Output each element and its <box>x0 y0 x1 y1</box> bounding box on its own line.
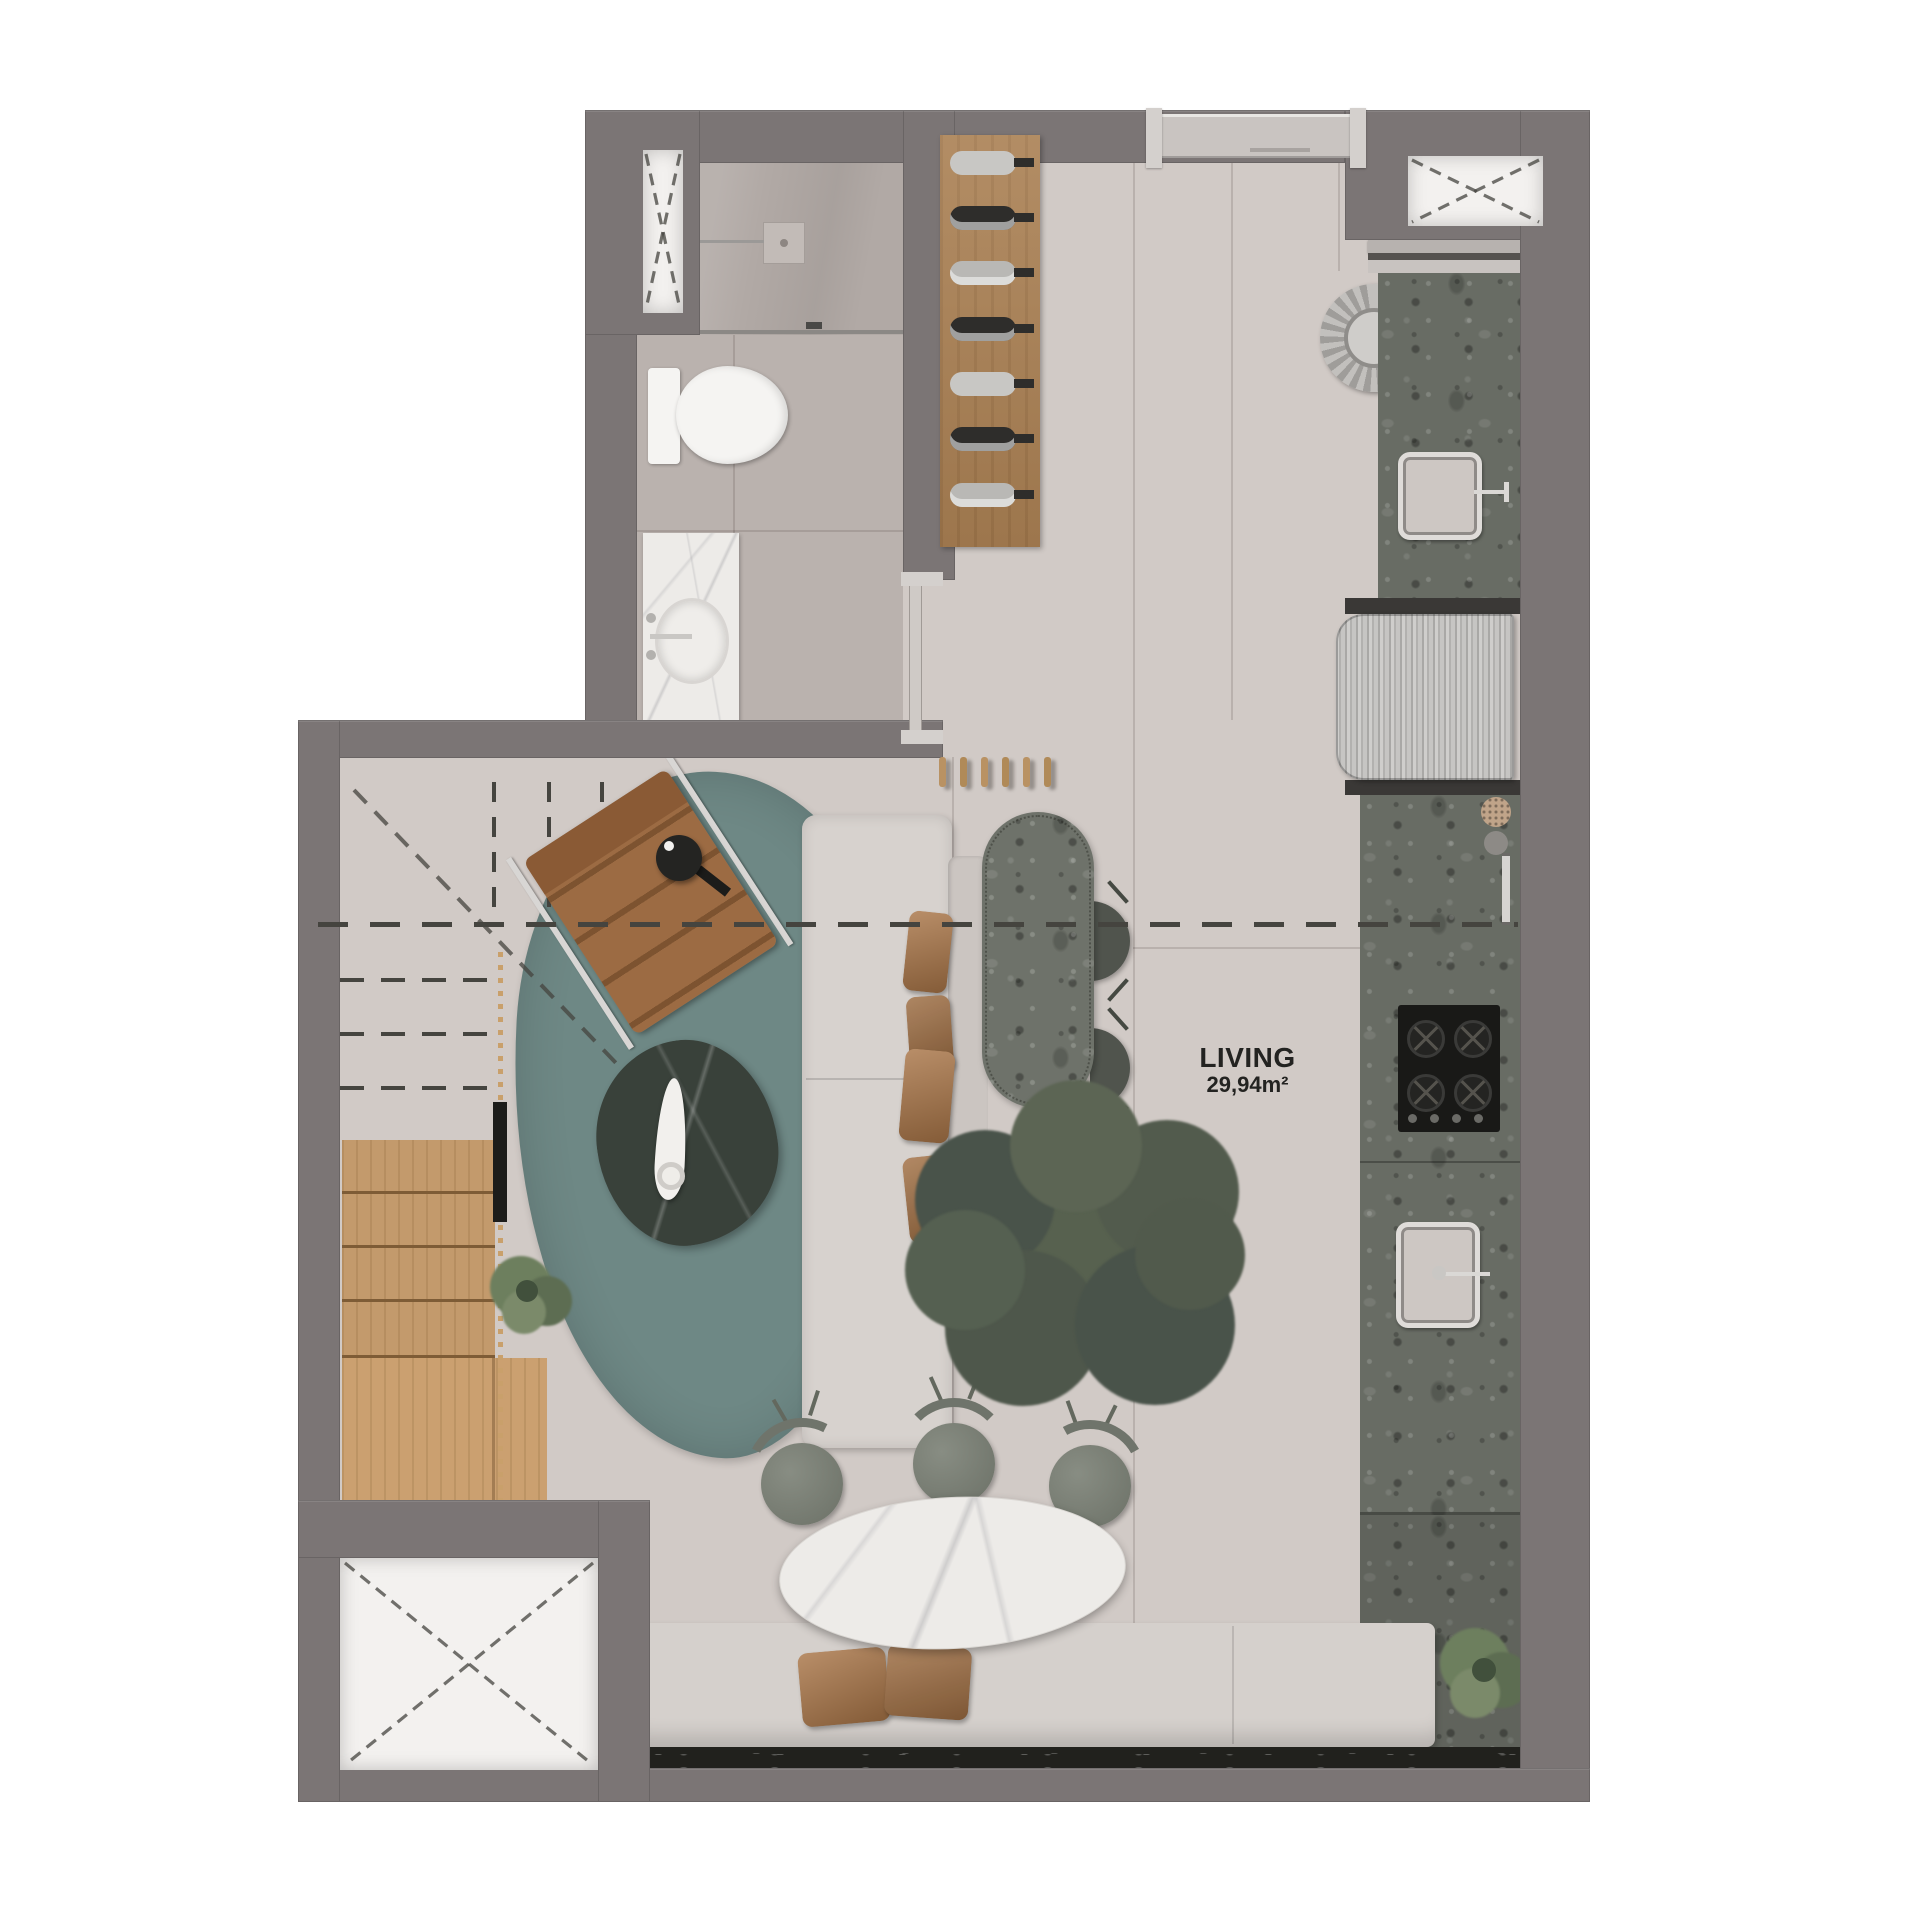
glass-door-handle <box>806 322 822 329</box>
stair-railing-bar <box>493 1102 507 1222</box>
wine-bottle <box>950 151 1016 175</box>
void-dash-row <box>340 978 498 982</box>
shower-drain-dot <box>780 239 788 247</box>
wine-bottle-neck <box>1014 268 1034 277</box>
cooktop-knob <box>1430 1114 1439 1123</box>
wall-left-wing <box>298 720 340 1802</box>
coat-peg <box>1002 757 1009 787</box>
faucet-bottom-knob <box>1432 1266 1446 1280</box>
bench-seat <box>640 1623 1435 1747</box>
kitchen-counter-bottom <box>1360 795 1520 1515</box>
vanity-faucet-knob <box>646 613 656 623</box>
tree-foliage <box>1010 1080 1142 1212</box>
floor-grout-line <box>1231 163 1233 720</box>
vanity-basin <box>655 598 729 684</box>
wine-bottle-neck <box>1014 158 1034 167</box>
side-table <box>656 835 702 881</box>
stair-landing-seam <box>492 1358 495 1503</box>
bathroom-door-leaf <box>909 585 922 735</box>
counter-joint <box>1360 1512 1520 1515</box>
plant-center <box>1472 1658 1496 1682</box>
coffee-table-cup <box>657 1162 685 1190</box>
floor-grout-line <box>1338 163 1340 271</box>
vanity-faucet-spout <box>650 634 692 639</box>
void-dash-vertical <box>492 782 496 922</box>
entry-door-jamb <box>1350 108 1366 168</box>
bench-seam <box>1232 1626 1234 1744</box>
refrigerator <box>1336 614 1514 780</box>
wine-rack <box>940 135 1040 547</box>
coat-peg <box>1044 757 1051 787</box>
floor-grout-line <box>1133 947 1360 949</box>
room-label-name: LIVING <box>1135 1042 1360 1073</box>
entry-door-jamb <box>1146 108 1162 168</box>
cabinet-handle <box>1502 856 1510 922</box>
dining-chair <box>761 1443 843 1525</box>
room-label: LIVING 29,94m² <box>1135 1042 1360 1098</box>
indoor-tree <box>905 1080 1245 1410</box>
stair-tread <box>342 1248 495 1302</box>
kitchen-island <box>982 812 1094 1108</box>
tree-foliage <box>1135 1200 1245 1310</box>
projection-dash-line <box>318 922 1518 927</box>
wall-right <box>1520 110 1590 1802</box>
stair-tread <box>342 1140 495 1194</box>
wine-bottle <box>950 372 1016 396</box>
wine-bottle <box>950 483 1016 507</box>
shower-arm <box>700 240 764 243</box>
fridge-gap <box>1345 598 1520 614</box>
faucet-top <box>1474 490 1508 494</box>
spice-jar <box>1484 831 1508 855</box>
stair-tread <box>342 1302 495 1358</box>
vanity-faucet-knob <box>646 650 656 660</box>
coat-peg <box>960 757 967 787</box>
wine-bottle-neck <box>1014 379 1034 388</box>
wine-bottle-neck <box>1014 434 1034 443</box>
coat-peg <box>939 757 946 787</box>
cooktop-knob <box>1474 1114 1483 1123</box>
kitchen-counter-top <box>1378 272 1520 612</box>
bench-pillow <box>884 1643 973 1721</box>
void-dash-row <box>340 1032 498 1036</box>
stair-tread <box>342 1194 495 1248</box>
bath-grout-line <box>637 530 903 532</box>
shower-niche-x <box>643 150 683 313</box>
tree-foliage <box>905 1210 1025 1330</box>
stair-landing <box>342 1358 547 1503</box>
wall-south-band <box>298 720 943 758</box>
wine-bottle <box>950 261 1016 285</box>
kitchen-sink-top <box>1398 452 1482 540</box>
wine-bottle <box>950 206 1016 230</box>
coat-peg <box>981 757 988 787</box>
wine-bottle-neck <box>1014 213 1034 222</box>
dining-chair <box>913 1423 995 1505</box>
bathroom-door-jamb <box>901 572 943 586</box>
wine-bottle <box>950 427 1016 451</box>
room-label-area: 29,94m² <box>1135 1073 1360 1098</box>
wall-box-right <box>598 1500 650 1802</box>
floor-plan: LIVING 29,94m² <box>0 0 1920 1920</box>
plant-stairs <box>482 1246 577 1341</box>
wall-bottom <box>298 1768 1590 1802</box>
bathroom-door-jamb <box>901 730 943 744</box>
cooktop-knob <box>1408 1114 1417 1123</box>
shaft-bottom-left-x <box>340 1558 598 1770</box>
bench-pillow <box>797 1646 891 1727</box>
side-table-dot <box>664 841 674 851</box>
counter-joint <box>1360 1161 1520 1163</box>
wine-bottle <box>950 317 1016 341</box>
wine-bottle-neck <box>1014 324 1034 333</box>
faucet-top-handle <box>1504 482 1509 502</box>
spice-jar <box>1481 797 1511 827</box>
coat-peg <box>1023 757 1030 787</box>
cooktop-knob <box>1452 1114 1461 1123</box>
plant-center <box>516 1280 538 1302</box>
void-dash-row <box>340 1086 498 1090</box>
glass-partition <box>700 330 903 334</box>
wine-bottle-neck <box>1014 490 1034 499</box>
shaft-top-right-x <box>1408 156 1543 226</box>
fridge-gap <box>1345 780 1520 795</box>
entry-door-handle <box>1250 148 1310 152</box>
